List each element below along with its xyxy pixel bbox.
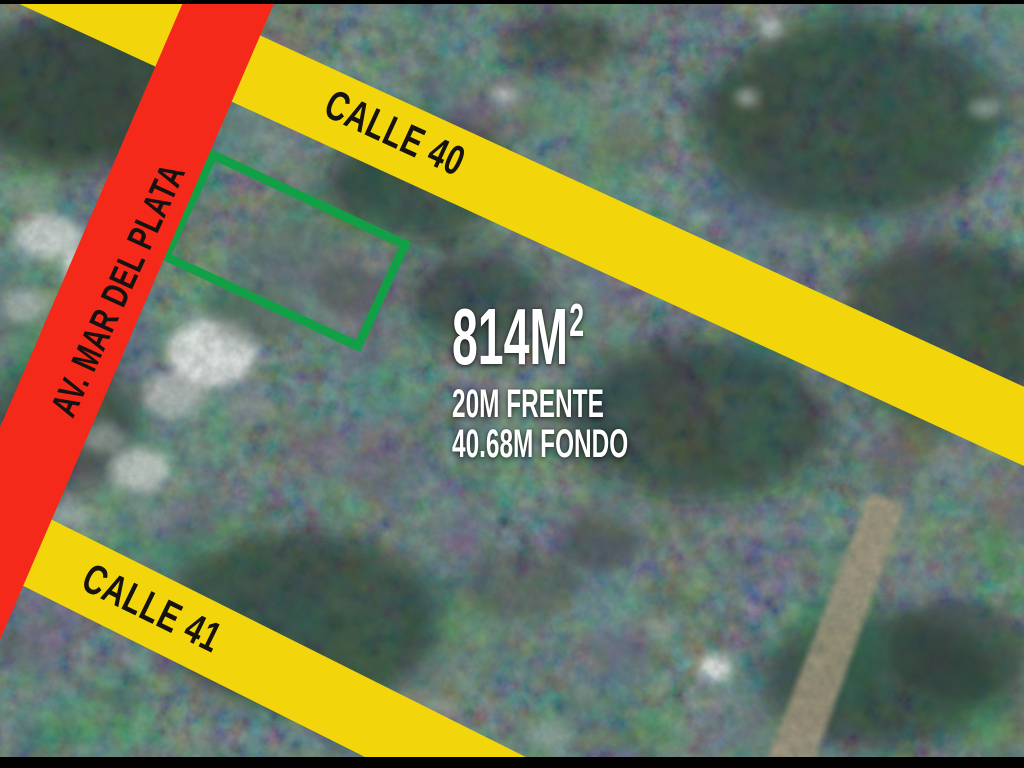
land-listing-image: CALLE 40 CALLE 41 AV. MAR DEL PLATA 814M… [0, 0, 1024, 768]
plot-area-text: 814M2 [452, 297, 584, 377]
letterbox-top [0, 0, 1024, 4]
plot-front-text: 20M FRENTE [452, 384, 604, 424]
plot-area-superscript: 2 [569, 294, 584, 346]
plot-area-value: 814M [452, 292, 568, 381]
letterbox-bottom [0, 757, 1024, 768]
plot-depth-text: 40.68M FONDO [452, 424, 628, 464]
